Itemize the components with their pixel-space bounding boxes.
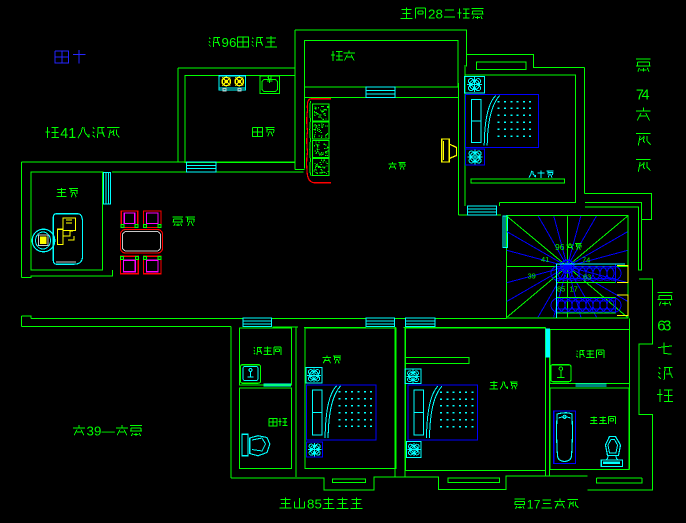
svg-text:1: 1 bbox=[68, 126, 76, 142]
svg-text:9: 9 bbox=[222, 35, 229, 50]
svg-text:8: 8 bbox=[436, 6, 443, 21]
svg-text:74: 74 bbox=[636, 87, 650, 103]
svg-text:74: 74 bbox=[582, 256, 590, 265]
svg-text:63: 63 bbox=[657, 319, 671, 335]
svg-text:39: 39 bbox=[528, 272, 536, 281]
svg-text:85: 85 bbox=[557, 285, 565, 294]
svg-text:9: 9 bbox=[94, 423, 101, 438]
svg-text:4: 4 bbox=[60, 126, 68, 142]
svg-text:17: 17 bbox=[570, 285, 578, 294]
svg-text:63: 63 bbox=[583, 273, 591, 282]
svg-text:41: 41 bbox=[541, 255, 549, 264]
svg-text:—: — bbox=[102, 423, 116, 438]
svg-text:1: 1 bbox=[527, 497, 534, 511]
svg-text:7: 7 bbox=[534, 497, 541, 511]
svg-text:8: 8 bbox=[307, 496, 314, 511]
svg-text:3: 3 bbox=[87, 423, 94, 438]
svg-text:5: 5 bbox=[315, 496, 322, 511]
svg-text:96: 96 bbox=[555, 242, 565, 252]
svg-text:2: 2 bbox=[428, 6, 435, 21]
svg-text:6: 6 bbox=[229, 35, 236, 50]
